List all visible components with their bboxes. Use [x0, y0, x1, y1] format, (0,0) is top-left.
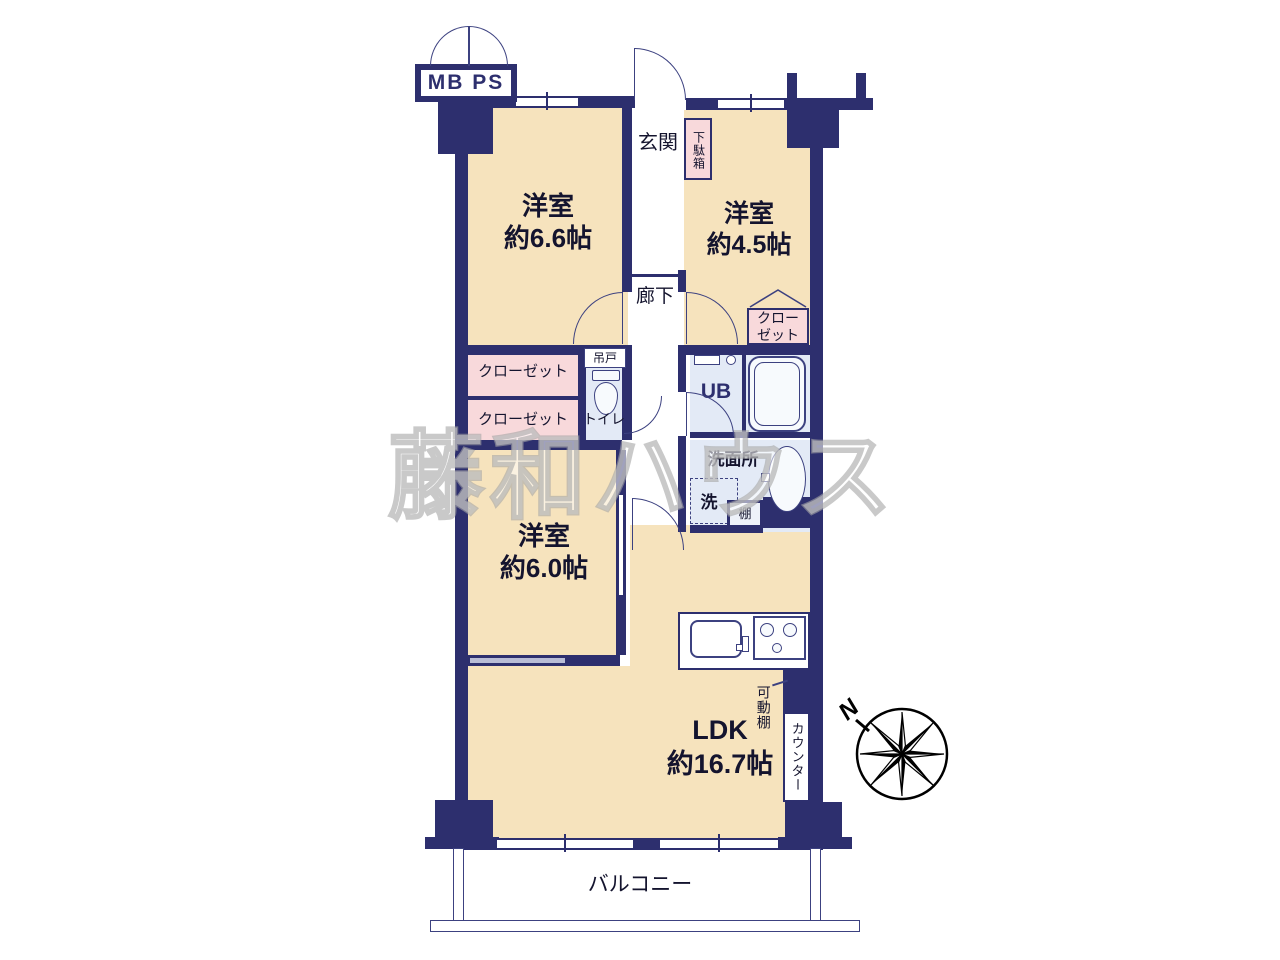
wall [787, 73, 797, 100]
window-tick [718, 834, 720, 852]
mbps-door-arc [469, 26, 508, 66]
floor-plan: MB PS 下駄箱 玄関 洋室 約6.6帖 洋室 約4.5帖 洋室 約6.0帖 … [0, 0, 1280, 960]
entrance-door-arc[interactable] [634, 48, 686, 100]
movable-shelf-label: 可動棚 [752, 666, 774, 748]
sliding-partition[interactable] [470, 658, 565, 663]
closet1-label: クローゼット [468, 360, 578, 384]
corridor-label: 廊下 [632, 284, 678, 310]
compass-rose: N [836, 692, 966, 814]
room-66-size: 約6.6帖 [504, 222, 592, 255]
closet3-label: クロー ゼット [747, 309, 809, 344]
mbps-label: MB PS [415, 64, 517, 102]
bath-control [694, 355, 720, 365]
ldk-size: 約16.7帖 [667, 748, 774, 782]
mbps-door-arc [430, 26, 469, 66]
room-45-name: 洋室 [724, 199, 774, 230]
watermark: 藤和ハウス [388, 408, 898, 528]
room-66-label: 洋室 約6.6帖 [468, 178, 628, 266]
sink-faucet-handle [742, 636, 749, 652]
kitchen-sink [690, 620, 742, 658]
tsurido-label: 吊戸 [584, 348, 626, 368]
genkan-label: 玄関 [630, 128, 686, 158]
room-60-size: 約6.0帖 [500, 552, 588, 585]
room-45-size: 約4.5帖 [707, 230, 792, 261]
wall [856, 73, 866, 100]
stove [753, 616, 806, 660]
burner [772, 643, 782, 653]
window-tick [546, 92, 548, 110]
room-66-name: 洋室 [522, 190, 574, 223]
closet3-line1: クロー [757, 310, 799, 326]
balcony-post [810, 848, 821, 922]
mbps-door-seam [468, 26, 470, 66]
window-tick [564, 834, 566, 852]
folding-door-icon [746, 288, 810, 308]
balcony-rail [430, 920, 860, 932]
counter-label: カウンター [783, 714, 810, 800]
bath-faucet [726, 355, 736, 365]
room-45-label: 洋室 約4.5帖 [688, 188, 810, 272]
wall-column [785, 802, 842, 838]
balcony-label: バルコニー [555, 870, 725, 900]
window-tick [750, 94, 752, 112]
wall [678, 345, 686, 392]
genkan-step [632, 274, 684, 277]
burner [783, 623, 797, 637]
getabako-label: 下駄箱 [684, 120, 712, 180]
wall [678, 345, 823, 355]
closet3-line2: ゼット [757, 327, 799, 343]
burner [760, 623, 774, 637]
compass-north-label: N [836, 694, 865, 726]
balcony-post [453, 848, 464, 922]
ldk-name: LDK [692, 714, 748, 748]
toilet-tank [592, 370, 620, 381]
wall-column [435, 800, 493, 838]
wall-column [438, 100, 493, 154]
